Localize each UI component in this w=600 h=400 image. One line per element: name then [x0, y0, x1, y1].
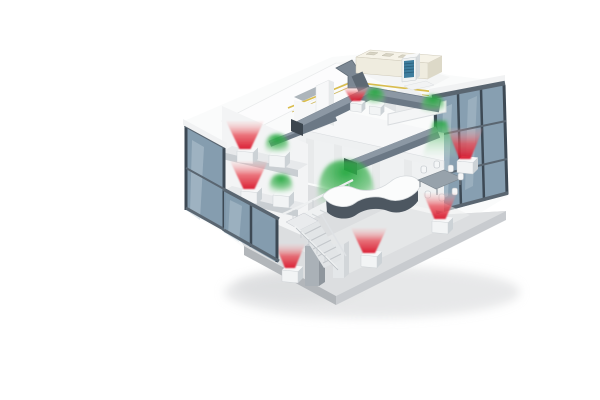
indoor-unit-front	[432, 221, 448, 234]
illustration-canvas	[0, 0, 600, 400]
hvac-scene	[0, 0, 600, 400]
indoor-unit-front	[350, 103, 362, 112]
chair	[458, 173, 464, 180]
indoor-unit-front	[269, 155, 285, 168]
indoor-unit-front	[273, 195, 289, 208]
stair-column-2-side	[344, 241, 349, 278]
chair	[434, 161, 440, 168]
outdoor-unit-side	[416, 53, 420, 80]
chair	[421, 166, 427, 173]
indoor-unit-front	[361, 255, 377, 268]
chair	[448, 165, 454, 172]
indoor-unit-front	[282, 270, 298, 283]
indoor-unit-front	[457, 161, 473, 174]
indoor-unit-front	[369, 106, 381, 115]
outdoor-unit	[402, 53, 420, 82]
